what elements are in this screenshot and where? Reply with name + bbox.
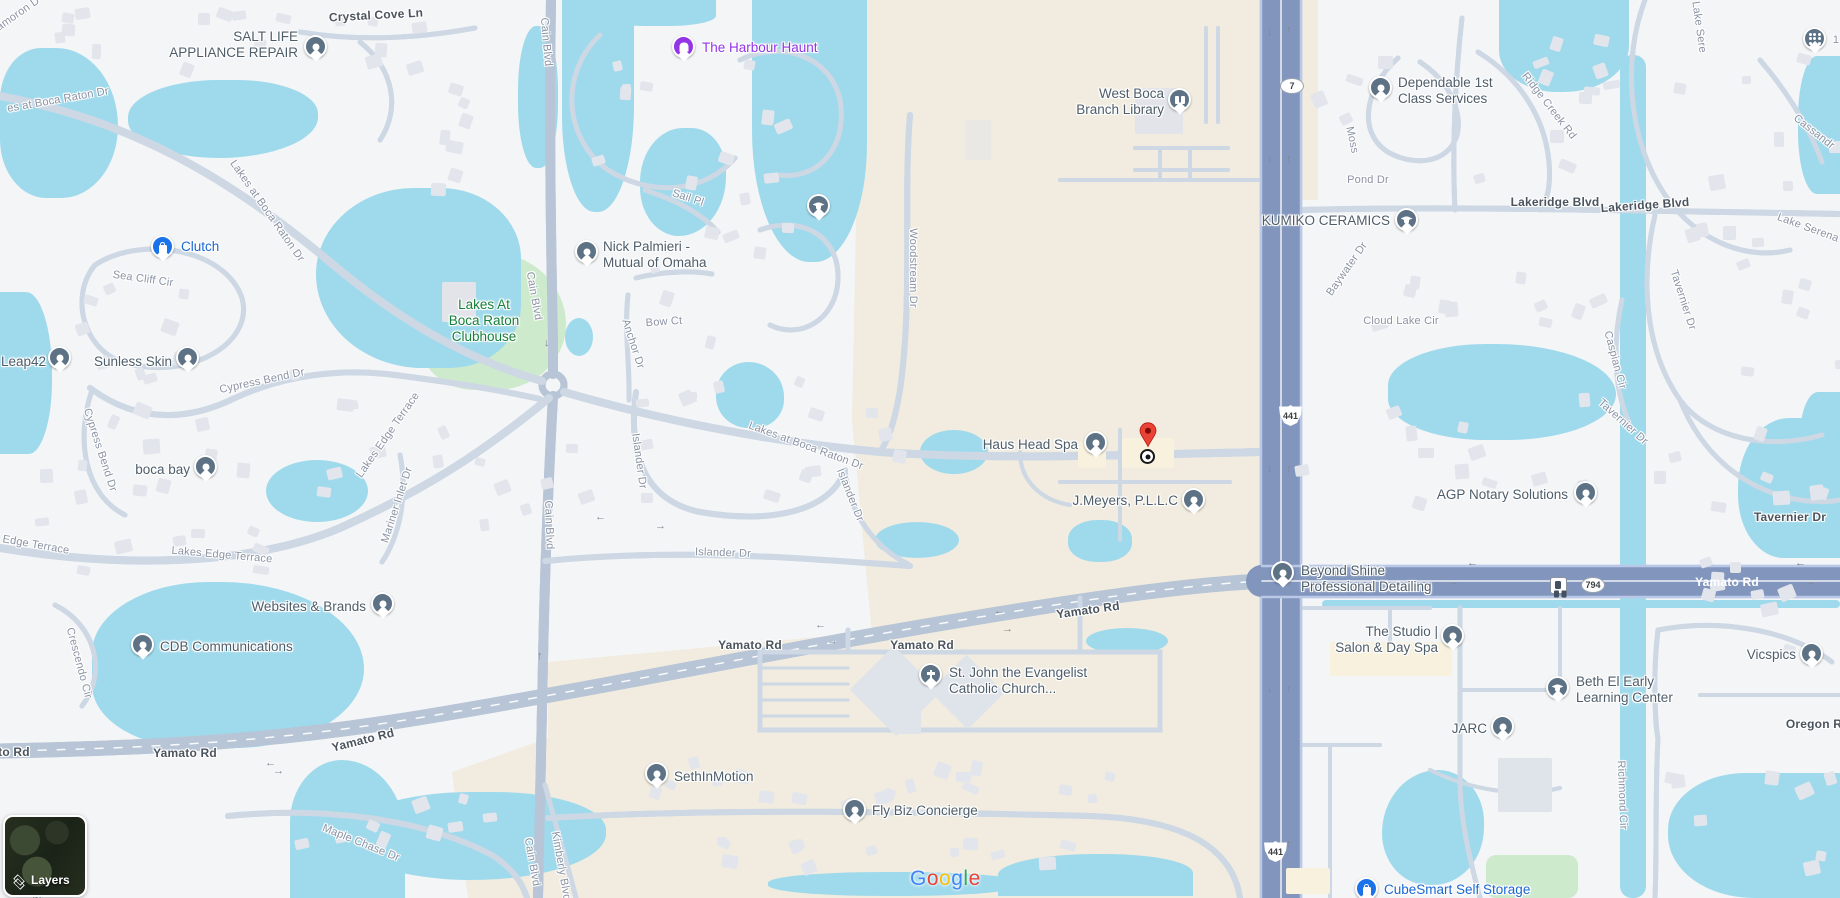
nick-palmieri-mutual-of-omaha-pin[interactable] [575, 240, 598, 263]
road-label: Cain Blvd [538, 17, 554, 67]
st-john-the-evangelist-catholic-church-pin[interactable] [919, 663, 942, 686]
road-label: 1 [1833, 34, 1839, 46]
road-label: Lake Serena [1776, 211, 1840, 244]
st-john-the-evangelist-catholic-church-label[interactable]: St. John the EvangelistCatholic Church..… [949, 665, 1087, 697]
road-label: Moss [1343, 126, 1360, 155]
road-label: Yamato Rd [1055, 599, 1120, 622]
road-label: Oregon R [1786, 717, 1840, 731]
road-direction-arrow: → [1448, 576, 1459, 588]
layers-icon [13, 875, 25, 887]
google-logo-letter: o [927, 867, 939, 890]
road-label: Yamato Rd [153, 746, 217, 760]
dependable-1st-class-services-label[interactable]: Dependable 1stClass Services [1398, 75, 1493, 107]
road-label: Crescendo Cir [64, 626, 94, 700]
road-label: Richmond Cir [1615, 760, 1629, 829]
road-label: Cain Blvd [542, 500, 556, 549]
leap42-label[interactable]: Leap42 [1, 354, 46, 370]
road-label: Crystal Cove Ln [329, 6, 424, 25]
boca-bay-label[interactable]: boca bay [135, 462, 190, 478]
the-harbour-haunt-pin[interactable] [672, 35, 695, 58]
road-label: Bow Ct [645, 315, 682, 330]
vicspics-label[interactable]: Vicspics [1747, 647, 1796, 663]
nick-palmieri-mutual-of-omaha-label[interactable]: Nick Palmieri -Mutual of Omaha [603, 239, 707, 271]
road-label: Lakes at Boca Raton Dr [747, 420, 865, 473]
google-logo-letter: g [951, 867, 963, 890]
layers-label: Layers [31, 873, 70, 887]
beyond-shine-professional-detailing-label[interactable]: Beyond ShineProfessional Detailing [1301, 563, 1432, 595]
fly-biz-concierge-label[interactable]: Fly Biz Concierge [872, 803, 978, 819]
route-badge-441: 441 [1279, 405, 1302, 426]
road-label: Cloud Lake Cir [1363, 315, 1439, 327]
cdb-communications-label[interactable]: CDB Communications [160, 639, 293, 655]
road-label: Islander Dr [695, 546, 751, 560]
road-label: Islander Dr [629, 432, 649, 489]
j-meyers-pllc-pin[interactable] [1182, 488, 1205, 511]
agp-notary-solutions-label[interactable]: AGP Notary Solutions [1437, 487, 1568, 503]
road-direction-arrow: → [1805, 576, 1816, 588]
road-label: Tavernier Dr [1596, 397, 1650, 448]
sethinmotion-pin[interactable] [645, 762, 668, 785]
road-direction-arrow: ↑ [1286, 838, 1292, 850]
school-pin-pin[interactable] [807, 194, 830, 217]
road-label: Lakeridge Blvd [1511, 195, 1600, 209]
road-label: Caspian Cir [1601, 330, 1628, 391]
road-direction-arrow: ← [1467, 557, 1478, 569]
road-direction-arrow: ← [994, 605, 1005, 617]
boca-bay-pin[interactable] [194, 455, 217, 478]
dependable-1st-class-services-pin[interactable] [1369, 76, 1392, 99]
lakes-at-boca-raton-clubhouse-label[interactable]: Lakes AtBoca RatonClubhouse [449, 297, 520, 345]
map-label-layer: amoron DCrystal Cove LnCain Blvdes at Bo… [0, 0, 1840, 898]
google-logo-letter: G [910, 867, 927, 890]
map-canvas[interactable]: amoron DCrystal Cove LnCain Blvdes at Bo… [0, 0, 1840, 898]
cubesmart-self-storage-pin[interactable] [1355, 877, 1378, 898]
road-label: Lakeridge Blvd [1600, 195, 1690, 215]
road-label: Anchor Dr [619, 318, 646, 371]
road-label: Maple Chase Dr [321, 822, 402, 864]
road-direction-arrow: ↓ [1267, 683, 1273, 695]
route-badge-7: 7 [1280, 78, 1304, 94]
west-boca-branch-library-pin[interactable] [1168, 88, 1191, 111]
road-label: Cypress Bend Dr [218, 366, 305, 396]
road-direction-arrow: ↑ [1286, 683, 1292, 695]
route-badge-794: 794 [1581, 577, 1605, 593]
haus-head-spa-pin[interactable] [1084, 431, 1107, 454]
road-direction-arrow: ← [595, 511, 606, 523]
websites-and-brands-label[interactable]: Websites & Brands [251, 599, 366, 615]
road-label: Yamato Rd [718, 638, 782, 652]
road-label: to Rd [0, 745, 30, 759]
road-direction-arrow: ↑ [1286, 463, 1292, 475]
road-direction-arrow: ← [1795, 557, 1806, 569]
road-direction-arrow: ← [815, 619, 826, 631]
google-logo-letter: e [969, 867, 981, 890]
road-label: Sail Pl [671, 187, 706, 208]
kumiko-ceramics-pin[interactable] [1395, 208, 1418, 231]
road-label: Islander Dr [834, 467, 866, 523]
leap42-pin[interactable] [48, 346, 71, 369]
sethinmotion-label[interactable]: SethInMotion [674, 769, 754, 785]
the-harbour-haunt-label[interactable]: The Harbour Haunt [702, 40, 818, 56]
road-label: Tavernier Dr [1668, 269, 1699, 332]
road-label: Ridge Creek Rd [1519, 70, 1578, 141]
clutch-pin[interactable] [151, 235, 174, 258]
road-label: Lake Sere [1689, 0, 1708, 53]
road-label: Cain Blvd [522, 837, 542, 887]
apartment-cluster-pin[interactable] [1803, 27, 1826, 50]
road-label: Kimberly Blvd [549, 831, 573, 898]
salt-life-appliance-repair-label[interactable]: SALT LIFEAPPLIANCE REPAIR [169, 29, 298, 61]
j-meyers-pllc-label[interactable]: J.Meyers, P.L.L.C [1072, 493, 1178, 509]
beth-el-early-learning-center-label[interactable]: Beth El EarlyLearning Center [1576, 674, 1673, 706]
road-label: Lakes Edge Terrace [171, 545, 273, 566]
road-direction-arrow: ↑ [1286, 24, 1292, 36]
google-logo-letter: o [939, 867, 951, 890]
road-direction-arrow: ↓ [1267, 26, 1273, 38]
road-label: Lakes at Boca Raton Dr [227, 158, 306, 264]
sunless-skin-label[interactable]: Sunless Skin [94, 354, 172, 370]
west-boca-branch-library-label[interactable]: West BocaBranch Library [1076, 86, 1164, 118]
selected-place-marker[interactable] [1139, 422, 1157, 453]
jarc-pin[interactable] [1491, 715, 1514, 738]
road-label: Pond Dr [1347, 174, 1389, 186]
road-direction-arrow: → [655, 520, 666, 532]
road-direction-arrow: → [273, 765, 284, 777]
road-direction-arrow: ↓ [1267, 153, 1273, 165]
road-direction-arrow: ↓ [1267, 463, 1273, 475]
road-label: Sea Cliff Cir [112, 269, 174, 289]
vicspics-pin[interactable] [1800, 642, 1823, 665]
transit-station-icon[interactable] [1550, 577, 1567, 594]
road-direction-arrow: → [1002, 623, 1013, 635]
beyond-shine-professional-detailing-pin[interactable] [1271, 561, 1294, 584]
road-label: Yamato Rd [890, 638, 954, 652]
road-label: Cypress Bend Dr [81, 407, 119, 493]
road-label: Woodstream Dr [907, 228, 919, 307]
road-label: Lakes Edge Terrace [354, 390, 422, 480]
websites-and-brands-pin[interactable] [371, 592, 394, 615]
road-label: Cassandr [1791, 112, 1837, 151]
the-studio-salon-day-spa-pin[interactable] [1441, 624, 1464, 647]
sunless-skin-pin[interactable] [176, 346, 199, 369]
road-label: Tavernier Dr [1754, 510, 1826, 524]
route-badge-441: 441 [1264, 841, 1287, 862]
road-label: amoron D [0, 0, 42, 33]
road-direction-arrow: ↓ [544, 337, 550, 349]
road-label: Cain Blvd [524, 271, 544, 321]
fly-biz-concierge-pin[interactable] [843, 798, 866, 821]
road-direction-arrow: ↑ [537, 650, 543, 662]
haus-head-spa-label[interactable]: Haus Head Spa [983, 437, 1078, 453]
road-direction-arrow: ↑ [1286, 153, 1292, 165]
beth-el-early-learning-center-pin[interactable] [1546, 676, 1569, 699]
kumiko-ceramics-label[interactable]: KUMIKO CERAMICS [1262, 213, 1390, 229]
clutch-label[interactable]: Clutch [181, 239, 219, 255]
cdb-communications-pin[interactable] [131, 633, 154, 656]
road-label: Yamato Rd [1695, 575, 1759, 589]
salt-life-appliance-repair-pin[interactable] [304, 35, 327, 58]
layers-button[interactable]: Layers [3, 815, 87, 897]
google-logo[interactable]: Google [910, 867, 981, 891]
agp-notary-solutions-pin[interactable] [1574, 481, 1597, 504]
road-label: es at Boca Raton Dr [6, 85, 109, 115]
road-label: Baywater Dr [1324, 240, 1370, 298]
the-studio-salon-day-spa-label[interactable]: The Studio |Salon & Day Spa [1335, 624, 1438, 656]
road-label: Edge Terrace [2, 533, 71, 557]
road-label: Yamato Rd [330, 725, 395, 754]
road-direction-arrow: → [827, 635, 838, 647]
jarc-label[interactable]: JARC [1452, 721, 1487, 737]
cubesmart-self-storage-label[interactable]: CubeSmart Self Storage [1384, 882, 1530, 898]
road-label: Mariner Inlet Dr [379, 466, 415, 545]
